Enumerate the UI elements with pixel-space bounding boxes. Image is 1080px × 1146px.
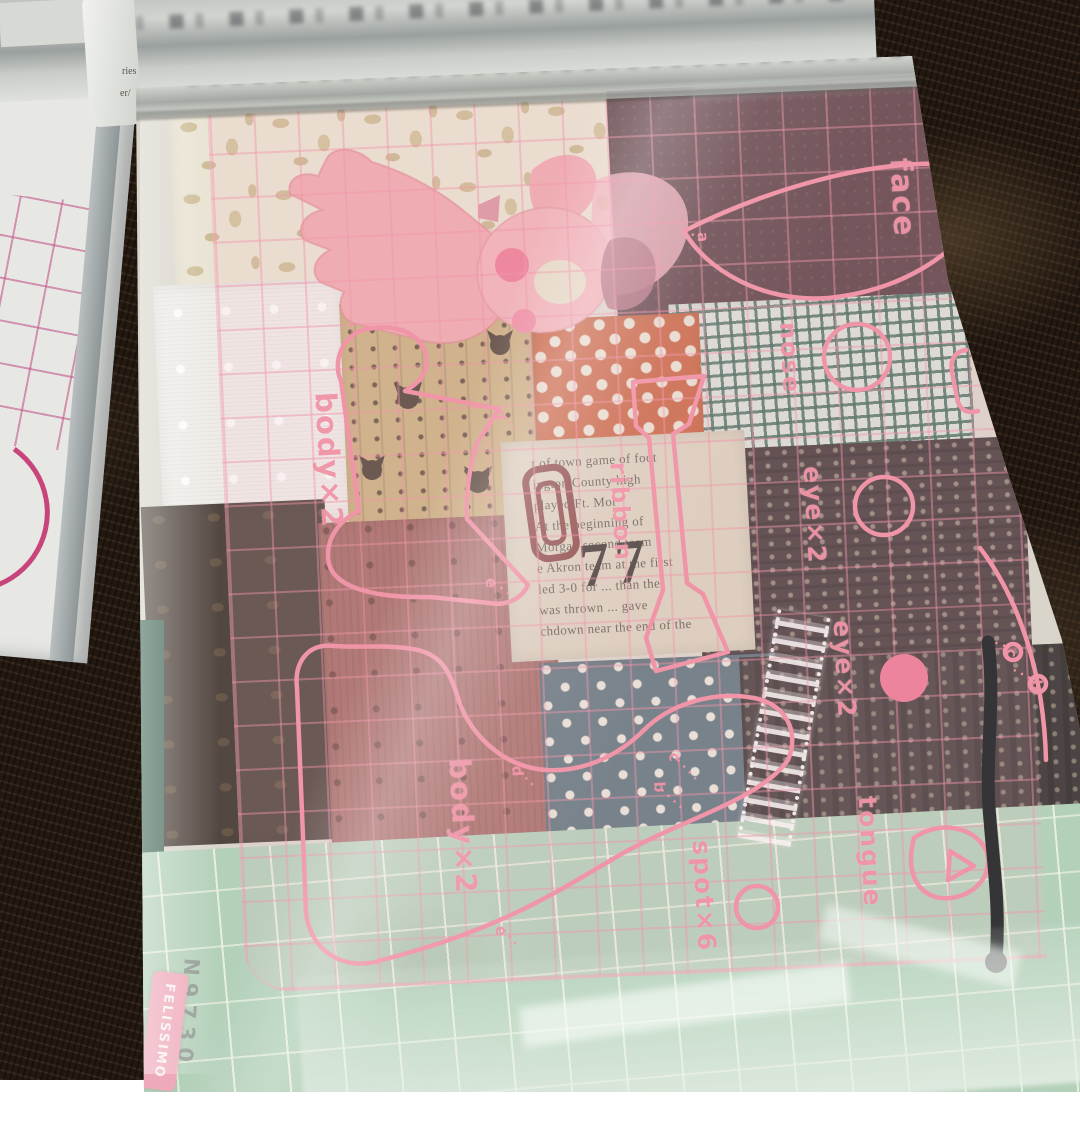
bag-sheen-left-edge	[140, 84, 220, 1074]
paper-text-fragment: er/	[120, 88, 131, 99]
bag-edge-curl	[81, 0, 142, 128]
craft-kit-bag: t of town game of foot ington County hig…	[0, 0, 1080, 1080]
top-package-printed-text-blur	[109, 0, 844, 31]
paper-text-fragment: ries	[122, 66, 136, 77]
